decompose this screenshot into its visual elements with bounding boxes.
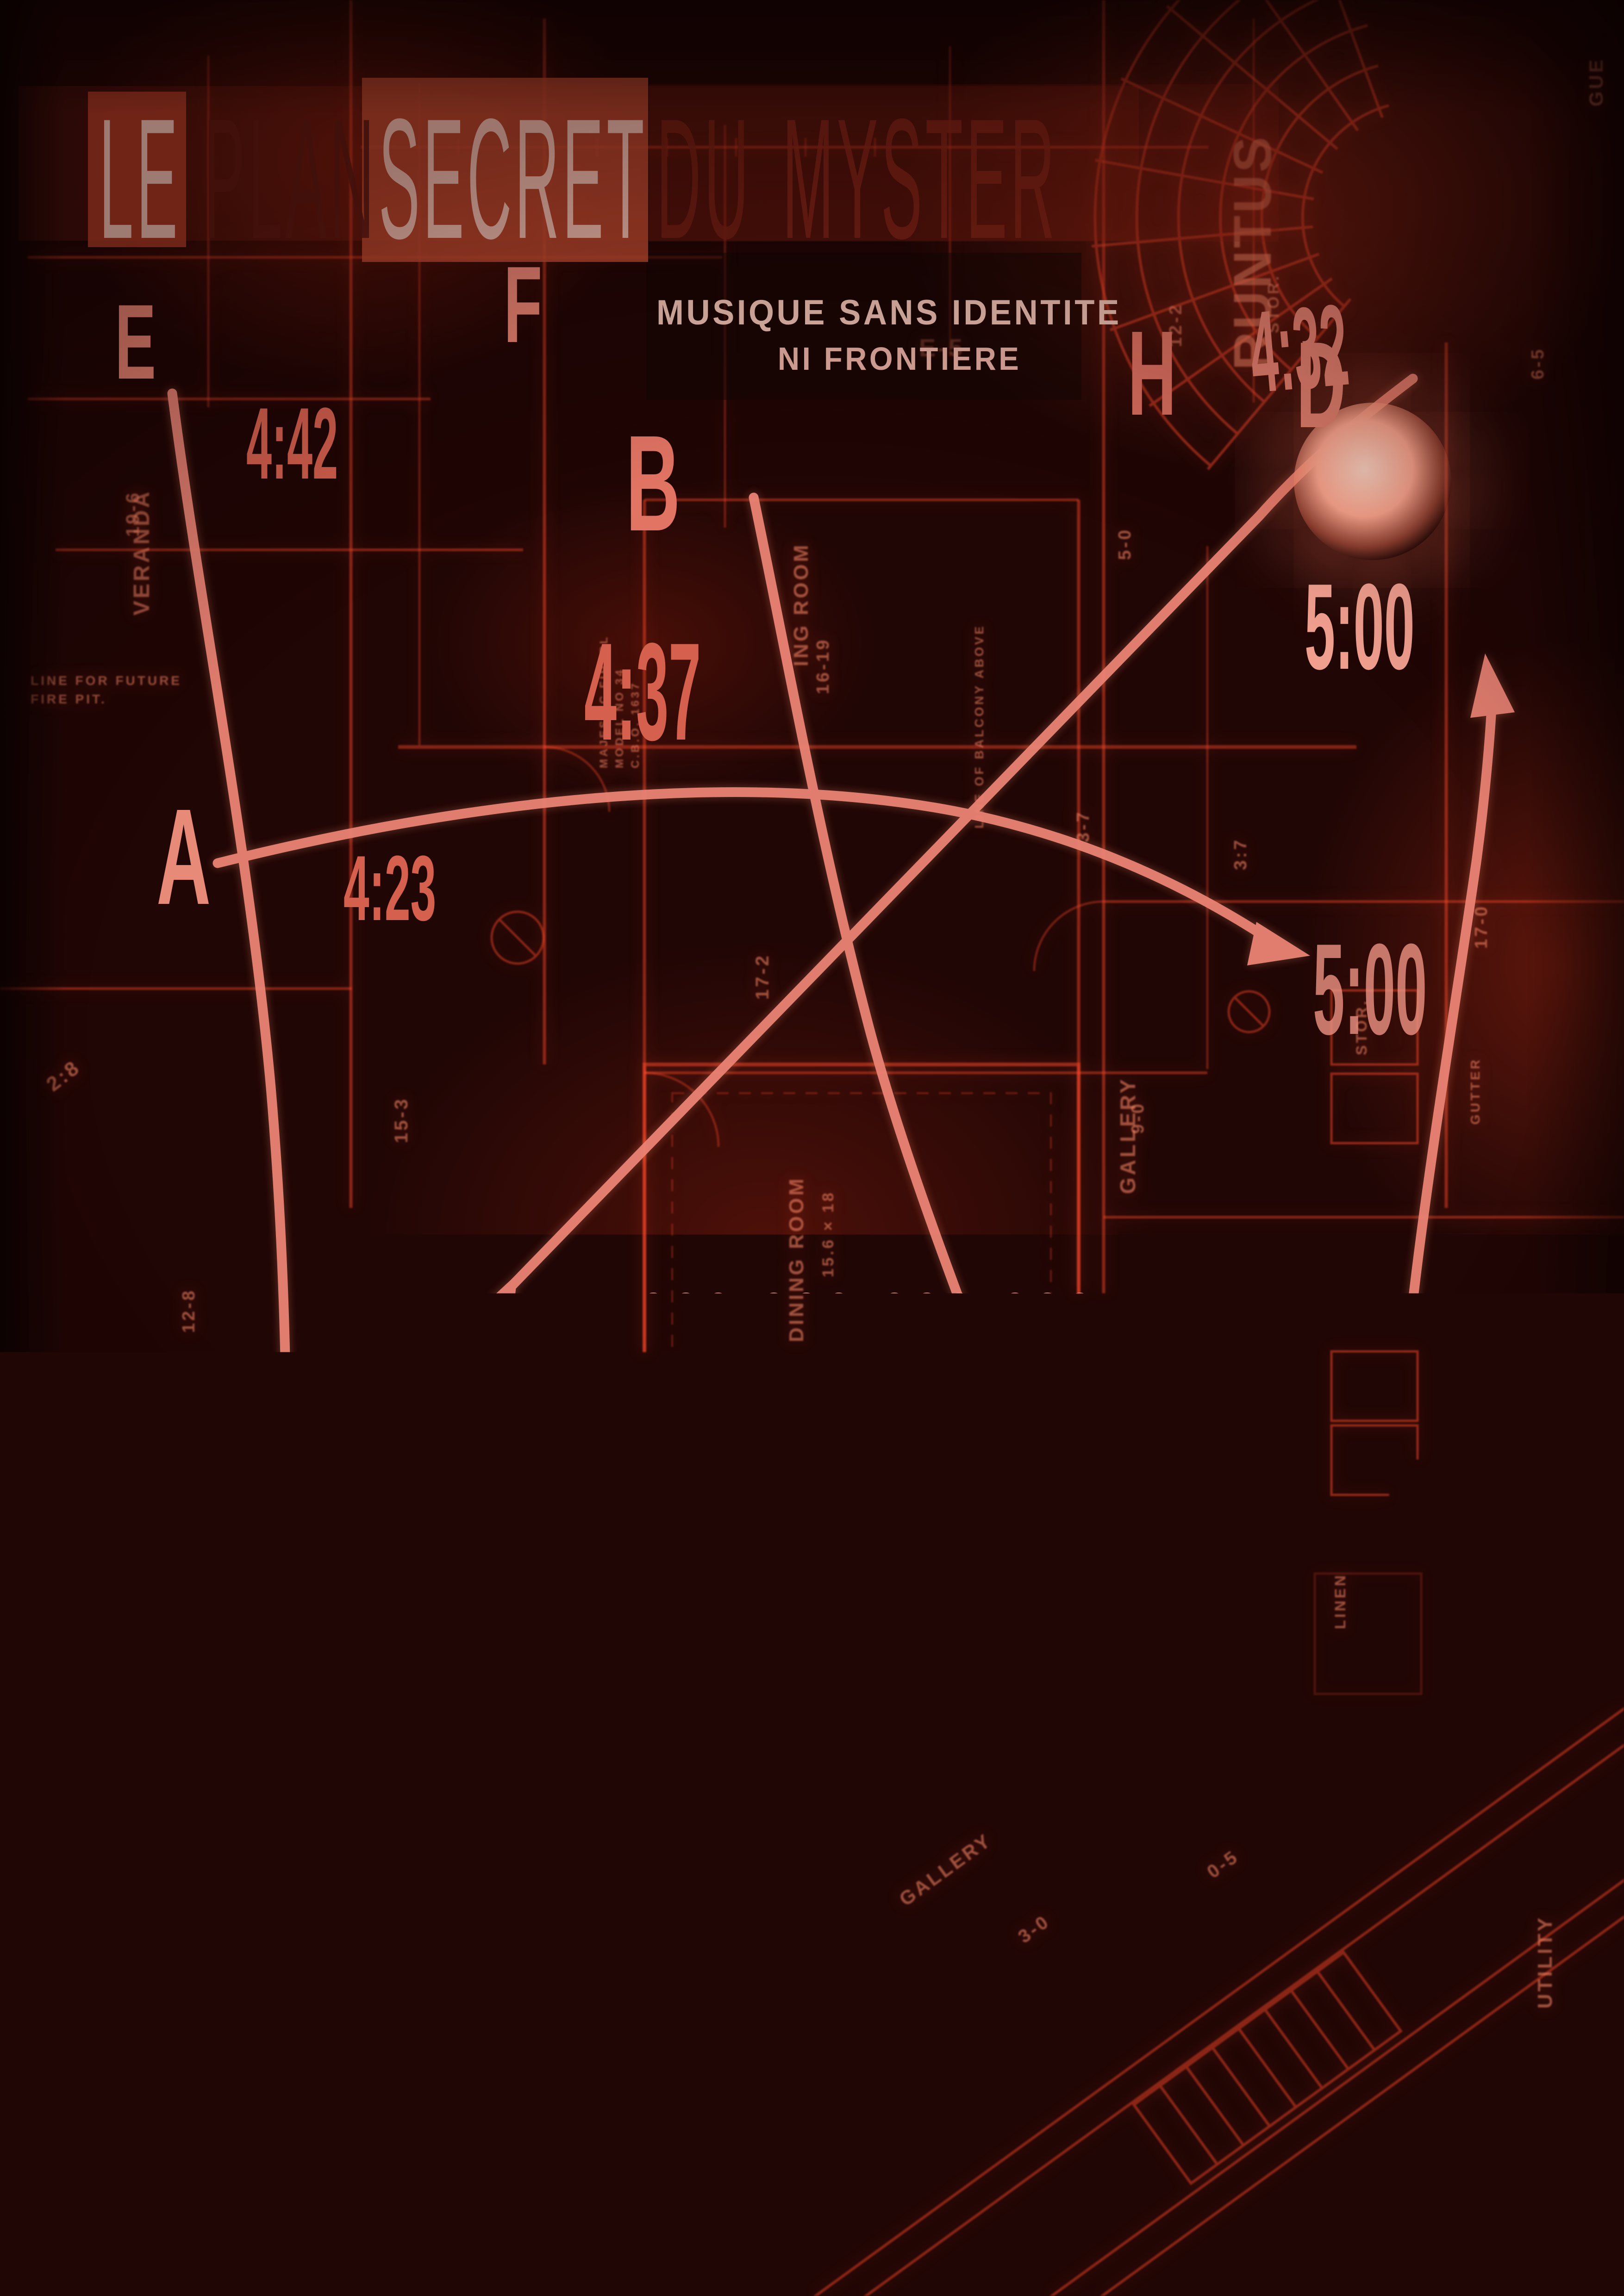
vignette <box>0 0 1624 2296</box>
poster-canvas: VERANDA ING ROOM DINING ROOM GALLERY KIT… <box>0 0 1624 2296</box>
